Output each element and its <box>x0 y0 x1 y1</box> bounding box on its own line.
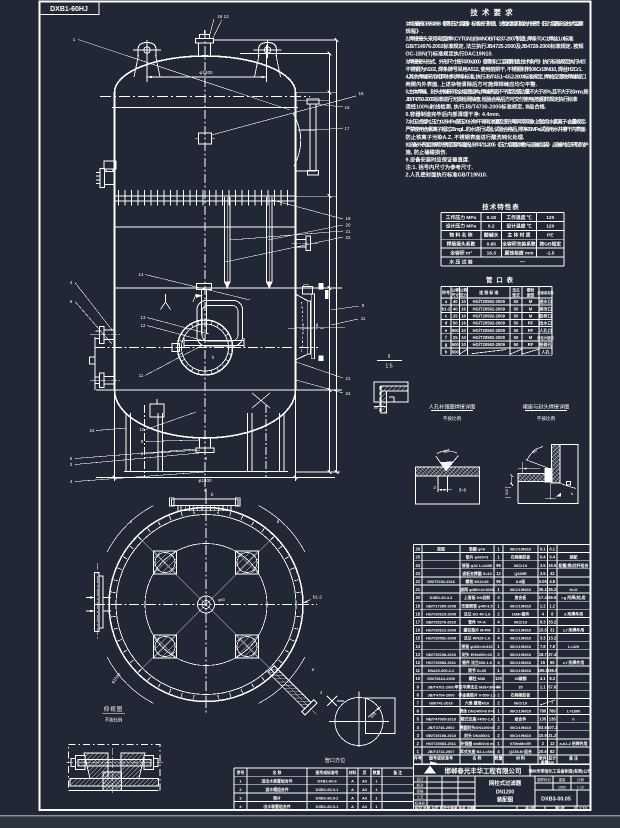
svg-text:密封: 密封 <box>526 288 535 293</box>
svg-text:DN420-600.2-2: DN420-600.2-2 <box>428 668 455 673</box>
svg-text:16.3: 16.3 <box>487 250 497 256</box>
svg-text:8.3: 8.3 <box>549 676 555 681</box>
svg-text:7.8: 7.8 <box>540 644 546 649</box>
svg-text:2.焊接接头采用电弧焊KCYTGN1(0)WNOB/T423: 2.焊接接头采用电弧焊KCYTGN1(0)WNOB/T4237-2007制造, … <box>406 35 575 43</box>
svg-text:封头 DN450X1: 封头 DN450X1 <box>464 733 491 738</box>
svg-text:液位计接口: 液位计接口 <box>537 335 553 340</box>
svg-text:A: A <box>351 795 354 800</box>
svg-text:管件 TF-A: 管件 TF-A <box>468 620 486 625</box>
svg-text:10: 10 <box>461 335 466 340</box>
svg-text:d: d <box>445 321 448 326</box>
svg-text:垫片 φ420×3: 垫片 φ420×3 <box>466 555 489 560</box>
svg-text:06Cr19Ni10: 06Cr19Ni10 <box>510 644 531 649</box>
svg-text:19: 19 <box>415 603 420 608</box>
svg-text:06Cr19: 06Cr19 <box>514 701 528 706</box>
svg-text:06Cr19Ni10: 06Cr19Ni10 <box>510 547 531 552</box>
svg-text:06Cr19Ni10: 06Cr19Ni10 <box>510 587 531 592</box>
svg-text:DXB1-60.5-1: DXB1-60.5-1 <box>316 804 340 809</box>
svg-text:120: 120 <box>495 676 503 681</box>
svg-text:18.7: 18.7 <box>539 652 548 657</box>
svg-text:15.5: 15.5 <box>539 628 548 633</box>
svg-text:两侧内外表面, 上述杂物清除后方可施焊焊缝应均匀平整.: 两侧内外表面, 上述杂物清除后方可施焊焊缝应均匀平整. <box>406 80 538 88</box>
svg-text:14: 14 <box>415 644 420 649</box>
svg-text:16: 16 <box>415 628 420 633</box>
svg-text:16: 16 <box>461 306 466 311</box>
svg-text:配重(钢)拉杆组合: 配重(钢)拉杆组合 <box>559 563 589 568</box>
svg-text:50: 50 <box>453 321 458 326</box>
svg-text:GB/T17395-2008: GB/T17395-2008 <box>426 603 457 608</box>
svg-text:M: M <box>529 299 533 304</box>
svg-text:装配图: 装配图 <box>496 796 514 804</box>
svg-text:780: 780 <box>549 709 557 714</box>
svg-text:HG/T20583-2011: HG/T20583-2011 <box>426 741 457 746</box>
svg-text:筒体 DN1400×8 δ=8: 筒体 DN1400×8 δ=8 <box>458 709 495 714</box>
svg-text:GB/T25198-2010: GB/T25198-2010 <box>426 733 456 738</box>
svg-text:管 口 表: 管 口 表 <box>486 275 514 284</box>
svg-text:1.本设备按GB150-1998《钢制压力容器》标准进行制造: 1.本设备按GB150-1998《钢制压力容器》标准进行制造、试验. 检验. 和… <box>406 20 585 28</box>
svg-text:GB/T25276-2010: GB/T25276-2010 <box>426 620 456 625</box>
svg-text:PE: PE <box>547 233 554 239</box>
svg-text:8.8级: 8.8级 <box>516 579 525 584</box>
svg-text:—: — <box>520 259 525 265</box>
svg-text:3.5: 3.5 <box>540 563 546 568</box>
svg-text:法兰 WN25-1.6: 法兰 WN25-1.6 <box>464 636 491 641</box>
svg-text:不按比例: 不按比例 <box>443 415 462 422</box>
svg-text:滤网 φ480×4×1040: 滤网 φ480×4×1040 <box>459 587 494 592</box>
svg-text:35碳钢: 35碳钢 <box>514 676 526 681</box>
svg-text:邯郸春光丰华工程有限公司: 邯郸春光丰华工程有限公司 <box>445 766 522 775</box>
svg-text:8.设备外表面涂刷防锈底漆两道(按)JB/T4711-200: 8.设备外表面涂刷防锈底漆两道(按)JB/T4711-2005《压力容器涂敷与运… <box>406 140 590 148</box>
svg-text:16Mn锻件: 16Mn锻件 <box>512 611 530 616</box>
svg-text:06Cr19Ni10: 06Cr19Ni10 <box>510 636 531 641</box>
svg-text:24: 24 <box>346 391 351 396</box>
svg-text:螺柱垫片 M-PM: 螺柱垫片 M-PM <box>463 628 490 633</box>
svg-text:主 体 材 质: 主 体 材 质 <box>507 232 530 239</box>
svg-text:11: 11 <box>361 316 366 321</box>
svg-text:公称: 公称 <box>451 288 459 293</box>
svg-text:技术特性表: 技术特性表 <box>482 202 520 211</box>
svg-text:垫片: 垫片 <box>273 795 281 800</box>
svg-text:96: 96 <box>496 563 501 568</box>
svg-text:L=1800: L=1800 <box>567 709 580 714</box>
svg-text:出水装置组合件: 出水装置组合件 <box>263 804 290 809</box>
svg-text:页: 页 <box>363 770 367 775</box>
svg-text:名 称: 名 称 <box>472 755 481 761</box>
svg-text:26: 26 <box>415 547 420 552</box>
svg-text:不锈钢为N102, 焊条牌号采用A512, 使用前烘干, 不: 不锈钢为N102, 焊条牌号采用A512, 使用前烘干, 不锈钢材料06Cr19… <box>406 65 584 73</box>
svg-text:Q235-B·组合: Q235-B·组合 <box>509 749 532 754</box>
svg-text:件号: 件号 <box>414 755 422 761</box>
svg-text:数量: 数量 <box>372 770 381 775</box>
svg-text:50: 50 <box>514 299 519 304</box>
svg-text:4.8: 4.8 <box>549 579 555 584</box>
svg-text:设计温度 ℃: 设计温度 ℃ <box>506 223 532 230</box>
svg-text:GB/T14976-2002标准规定, 法兰执行JB4725: GB/T14976-2002标准规定, 法兰执行JB4725-2000及JB47… <box>406 42 585 50</box>
svg-text:06Cr19Ni10: 06Cr19Ni10 <box>510 603 531 608</box>
svg-text:42: 42 <box>550 571 555 576</box>
svg-text:材 料: 材 料 <box>515 755 525 761</box>
svg-text:螺栓 M12×45: 螺栓 M12×45 <box>465 579 489 584</box>
svg-text:JB/T4750-2005标准进行无损检测抽查, 检验合格后: JB/T4750-2005标准进行无损检测抽查, 检验合格后方可交付使用(按)图… <box>406 95 579 103</box>
svg-text:第1张: 第1张 <box>555 806 565 811</box>
svg-text:进水口: 进水口 <box>539 298 552 305</box>
svg-text:r.g 所焊(封)用: r.g 所焊(封)用 <box>562 595 586 600</box>
svg-text:注:1. 括号内尺寸为参考尺寸.: 注:1. 括号内尺寸为参考尺寸. <box>406 163 474 171</box>
svg-text:21: 21 <box>415 587 420 592</box>
svg-text:δ=8: δ=8 <box>459 488 467 493</box>
svg-text:135: 135 <box>539 717 547 722</box>
svg-text:JB/T4746-2002: JB/T4746-2002 <box>427 725 455 730</box>
svg-text:DXB1-60.3-3: DXB1-60.3-3 <box>430 595 454 600</box>
svg-text:施, 防止磕碰损伤.: 施, 防止磕碰损伤. <box>406 148 448 156</box>
svg-text:技 术 要 求: 技 术 要 求 <box>470 7 513 17</box>
svg-text:M: M <box>529 306 533 311</box>
svg-text:12: 12 <box>141 323 146 328</box>
svg-text:10: 10 <box>415 676 420 681</box>
svg-text:出水口: 出水口 <box>539 320 552 327</box>
svg-text:HG/T20592-2009: HG/T20592-2009 <box>473 342 506 347</box>
svg-text:b1-2: b1-2 <box>442 306 451 311</box>
svg-text:57.6: 57.6 <box>548 684 557 689</box>
svg-text:13: 13 <box>141 315 146 320</box>
svg-text:4.其余焊缝采用相同材料焊条标准, 执行JB/T4.5.1~: 4.其余焊缝采用相同材料焊条标准, 执行JB/T4.5.1~4.5.2-2000… <box>406 72 587 80</box>
svg-text:0.2: 0.2 <box>488 224 495 230</box>
svg-text:20.6: 20.6 <box>539 749 548 754</box>
svg-text:OC-1BN(T)标准规定执行DAC19N10.: OC-1BN(T)标准规定执行DAC19N10. <box>406 50 494 58</box>
svg-text:A3: A3 <box>362 778 368 783</box>
svg-text:GB/T41-2016: GB/T41-2016 <box>429 701 453 706</box>
svg-text:HG/T20592-2009: HG/T20592-2009 <box>426 636 457 641</box>
svg-text:g: g <box>445 342 448 347</box>
svg-text:取样口: 取样口 <box>539 313 552 320</box>
svg-text:HG/T20592-2009: HG/T20592-2009 <box>473 306 506 311</box>
svg-text:16: 16 <box>461 314 466 319</box>
svg-text:防止铁离子污染A.Z, 不锈钢表面进行酸洗钝化处理.: 防止铁离子污染A.Z, 不锈钢表面进行酸洗钝化处理. <box>406 133 525 141</box>
svg-text:封头 EHA600×10: 封头 EHA600×10 <box>462 652 492 657</box>
svg-text:DN1200: DN1200 <box>496 790 515 796</box>
svg-text:25: 25 <box>415 555 420 560</box>
svg-text:17.4: 17.4 <box>539 595 548 600</box>
svg-text:06Cr19Ni10: 06Cr19Ni10 <box>510 660 531 665</box>
svg-text:4.1: 4.1 <box>540 676 546 681</box>
svg-text:0.1: 0.1 <box>549 547 555 552</box>
svg-text:h: h <box>212 355 215 360</box>
svg-text:腐蚀裕度 mm: 腐蚀裕度 mm <box>504 249 533 256</box>
svg-text:33.2: 33.2 <box>548 620 557 625</box>
svg-text:6.容器制造完毕后内部清理干净: 4.4mm.: 6.容器制造完毕后内部清理干净: 4.4mm. <box>406 110 501 118</box>
svg-text:50: 50 <box>514 306 519 311</box>
svg-text:06Cr19Ni10: 06Cr19Ni10 <box>510 628 531 633</box>
svg-text:接管 φ108×4×320: 接管 φ108×4×320 <box>460 644 492 649</box>
svg-text:上管板 DN自制: 上管板 DN自制 <box>464 595 490 600</box>
svg-text:a,b1-2 所焊件用: a,b1-2 所焊件用 <box>560 741 588 746</box>
svg-text:1:10: 1:10 <box>579 807 587 811</box>
svg-text:排污口: 排污口 <box>539 305 552 312</box>
svg-text:备 注: 备 注 <box>568 755 578 761</box>
svg-text:0.05: 0.05 <box>539 579 548 584</box>
svg-text:六角 螺母M16: 六角 螺母M16 <box>465 701 490 706</box>
svg-text:20: 20 <box>415 595 420 600</box>
svg-text:-1.5: -1.5 <box>546 250 555 256</box>
svg-text:10: 10 <box>461 328 466 333</box>
svg-text:543: 543 <box>505 489 509 495</box>
svg-text:审核: 审核 <box>416 789 424 794</box>
svg-text:40: 40 <box>453 306 458 311</box>
svg-text:13: 13 <box>415 652 420 657</box>
svg-text:标记 处数 分区 更改文件号 签名 日期: 标记 处数 分区 更改文件号 签名 日期 <box>414 806 474 811</box>
svg-text:600: 600 <box>452 342 460 347</box>
svg-text:重量(kg): 重量(kg) <box>541 759 556 764</box>
svg-text:06Cr19Ni10: 06Cr19Ni10 <box>510 733 531 738</box>
svg-text:筒节 δ=35: 筒节 δ=35 <box>467 668 487 673</box>
svg-text:50: 50 <box>514 328 519 333</box>
svg-text:h: h <box>445 349 448 354</box>
svg-text:M: M <box>374 405 378 410</box>
svg-text:15: 15 <box>540 660 545 665</box>
svg-text:DXB1-60.3-1: DXB1-60.3-1 <box>316 787 340 792</box>
svg-text:HG/T20592-2009: HG/T20592-2009 <box>473 335 506 340</box>
svg-text:鞍式支座 FF50-1.6: 鞍式支座 FF50-1.6 <box>461 717 494 722</box>
svg-text:8.3: 8.3 <box>540 620 546 625</box>
svg-text:A3: A3 <box>362 795 368 800</box>
svg-text:规程》.: 规程》. <box>406 27 424 35</box>
svg-text:进出水装置组合件: 进出水装置组合件 <box>261 778 292 783</box>
svg-text:A: A <box>351 778 354 783</box>
svg-text:物 料 名 称: 物 料 名 称 <box>449 232 472 239</box>
svg-text:0.18: 0.18 <box>487 215 497 221</box>
svg-text:HG/T20592-2009: HG/T20592-2009 <box>473 314 506 319</box>
svg-text:17: 17 <box>415 620 420 625</box>
svg-text:NB/T47065-2018: NB/T47065-2018 <box>426 717 457 722</box>
svg-text:M: M <box>529 314 533 319</box>
svg-text:24: 24 <box>90 428 95 433</box>
svg-text:HG/T20615-2009: HG/T20615-2009 <box>426 611 457 616</box>
svg-text:耳式支座 B2-L=504: 耳式支座 B2-L=504 <box>460 749 495 754</box>
svg-text:120: 120 <box>546 224 554 230</box>
svg-text:16: 16 <box>345 105 350 110</box>
svg-text:15: 15 <box>415 636 420 641</box>
svg-text:DXB1-60.6: DXB1-60.6 <box>317 778 337 783</box>
svg-text:GB/T25198-2010: GB/T25198-2010 <box>426 652 456 657</box>
svg-text:管口方位: 管口方位 <box>325 756 346 764</box>
svg-text:严禁使用含氯离子超过25mg/L. 的水进行试验, 试验合格: 严禁使用含氯离子超过25mg/L. 的水进行试验, 试验合格后, 排净25MPa… <box>405 125 587 133</box>
svg-text:数量: 数量 <box>494 755 503 761</box>
svg-text:螺柱 M36: 螺柱 M36 <box>469 676 486 681</box>
svg-text:φ1400: φ1400 <box>199 70 213 75</box>
svg-text:d 所焊件用: d 所焊件用 <box>564 611 583 616</box>
svg-text:用途或名称: 用途或名称 <box>537 290 555 295</box>
svg-text:法兰: 法兰 <box>512 288 520 293</box>
svg-text:11: 11 <box>416 668 421 673</box>
svg-text:检修孔: 检修孔 <box>539 341 552 348</box>
svg-text:3.5: 3.5 <box>540 571 546 576</box>
svg-text:补强圈 dn560×8 m: 补强圈 dn560×8 m <box>460 741 495 746</box>
svg-text:法兰 SO 40-1.6: 法兰 SO 40-1.6 <box>464 611 491 616</box>
svg-text:d: d <box>277 519 280 525</box>
svg-text:1.2: 1.2 <box>540 603 546 608</box>
svg-text:1.2: 1.2 <box>549 603 555 608</box>
svg-text:HG/T20592-2009: HG/T20592-2009 <box>473 321 506 326</box>
svg-text:12: 12 <box>550 741 555 746</box>
svg-text:c,f 所焊件用: c,f 所焊件用 <box>563 628 584 633</box>
svg-text:人孔口: 人孔口 <box>538 327 552 334</box>
svg-text:10: 10 <box>461 342 466 347</box>
svg-text:10: 10 <box>461 299 466 304</box>
svg-text:3.3: 3.3 <box>540 636 546 641</box>
svg-text:M: M <box>529 335 533 340</box>
svg-text:备 注: 备 注 <box>392 770 402 775</box>
svg-text:RF: RF <box>528 321 534 326</box>
svg-text:7.水压试验时, 压力0.25MPa保压30分钟不得有渗漏及: 7.水压试验时, 压力0.25MPa保压30分钟不得有渗漏及变形等异常现象, 试… <box>406 118 587 126</box>
svg-text:0.85: 0.85 <box>487 242 497 248</box>
svg-text:共1张: 共1张 <box>525 806 535 811</box>
svg-text:滤水帽组合件: 滤水帽组合件 <box>264 787 288 792</box>
svg-text:L=420: L=420 <box>568 644 579 649</box>
svg-text:195.5: 195.5 <box>547 668 558 673</box>
svg-text:12: 12 <box>496 571 501 576</box>
svg-text:标准化: 标准化 <box>415 801 426 806</box>
svg-text:64: 64 <box>496 684 501 689</box>
svg-text:07MnMoVR: 07MnMoVR <box>510 741 531 746</box>
svg-text:06Cr19Ni10: 06Cr19Ni10 <box>510 652 531 657</box>
svg-text:全容积充装系数: 全容积充装系数 <box>501 241 536 248</box>
svg-text:600: 600 <box>452 328 460 333</box>
svg-text:水 压 试 验: 水 压 试 验 <box>448 258 472 265</box>
svg-text:3.焊接接头形式、外形尺寸按T4709-2000《钢制化工容: 3.焊接接头形式、外形尺寸按T4709-2000《钢制化工容器制造. 技术条件》… <box>406 57 588 65</box>
svg-text:21: 21 <box>346 376 351 381</box>
svg-text:JB/T4704-2000: JB/T4704-2000 <box>427 692 454 697</box>
svg-text:HG/T20592-2009: HG/T20592-2009 <box>473 299 506 304</box>
svg-text:压力: 压力 <box>460 293 468 298</box>
svg-text:1:10: 1:10 <box>577 786 584 790</box>
svg-text:0.4: 0.4 <box>540 555 546 560</box>
svg-text:石棉橡胶板: 石棉橡胶板 <box>510 555 531 560</box>
svg-text:18.5: 18.5 <box>548 563 557 568</box>
svg-text:须经100%射线检测, 执行JB/T4730-2005标准规: 须经100%射线检测, 执行JB/T4730-2005标准规定, Ⅲ级合格. <box>406 103 547 111</box>
svg-text:人孔: 人孔 <box>540 348 550 355</box>
svg-text:06Cr19Ni10: 06Cr19Ni10 <box>510 709 531 714</box>
svg-text:Q345R: Q345R <box>514 571 527 576</box>
svg-text:13.2: 13.2 <box>548 636 557 641</box>
svg-text:5.主体焊缝、封头拼缝采用全熔透结构, 焊缝表面不平度及错边: 5.主体焊缝、封头拼缝采用全熔透结构, 焊缝表面不平度及错边量不大于20%, 且… <box>406 87 590 95</box>
svg-text:组合件: 组合件 <box>515 717 527 722</box>
svg-text:φ60: φ60 <box>218 598 225 602</box>
svg-text:1560: 1560 <box>558 786 566 790</box>
svg-text:HG/T20592-2009: HG/T20592-2009 <box>473 328 506 333</box>
svg-text:37.4: 37.4 <box>548 652 557 657</box>
svg-text:校对: 校对 <box>416 783 424 788</box>
svg-text:16: 16 <box>461 321 466 326</box>
svg-text:甲型平焊法兰 M36×300-A: 甲型平焊法兰 M36×300-A <box>455 684 500 689</box>
svg-text:40: 40 <box>453 299 458 304</box>
svg-text:HG/T20583-2011: HG/T20583-2011 <box>426 660 457 665</box>
svg-text:e: e <box>312 668 315 673</box>
svg-text:滤板支撑圈 δ=10: 滤板支撑圈 δ=10 <box>461 571 492 576</box>
svg-text:复合板: 复合板 <box>514 595 527 600</box>
svg-text:尺寸: 尺寸 <box>451 293 459 298</box>
svg-text:16 12: 16 12 <box>217 14 229 19</box>
svg-text:50: 50 <box>514 314 519 319</box>
svg-text:06Cr19Ni10: 06Cr19Ni10 <box>510 668 531 673</box>
svg-text:焊接接头系数: 焊接接头系数 <box>447 241 476 248</box>
svg-text:780: 780 <box>539 709 547 714</box>
svg-text:15: 15 <box>358 91 364 96</box>
svg-text:工艺: 工艺 <box>416 795 424 800</box>
svg-text:锦州市荣信化工设备制造(有限)公司: 锦州市荣信化工设备制造(有限)公司 <box>529 768 592 774</box>
svg-text:A: A <box>351 787 354 792</box>
svg-text:名 称: 名 称 <box>273 770 282 775</box>
svg-text:10.9: 10.9 <box>539 733 548 738</box>
svg-text:垫圈 φ=6: 垫圈 φ=6 <box>469 547 486 552</box>
svg-text:GB/T5782-2016: GB/T5782-2016 <box>427 579 456 584</box>
svg-text:96: 96 <box>496 579 501 584</box>
svg-text:0.4: 0.4 <box>549 555 555 560</box>
svg-text:17: 17 <box>345 126 350 131</box>
svg-text:50: 50 <box>514 321 519 326</box>
svg-text:φ1400: φ1400 <box>198 478 212 483</box>
svg-text:仰视图: 仰视图 <box>104 705 123 713</box>
svg-text:工作压力 MPa: 工作压力 MPa <box>446 214 477 221</box>
svg-text:18: 18 <box>415 611 420 616</box>
svg-text:06Cr19: 06Cr19 <box>514 563 528 568</box>
svg-text:RF: RF <box>528 342 534 347</box>
svg-text:35.2: 35.2 <box>548 587 557 592</box>
svg-text:HG/T20612-2009: HG/T20612-2009 <box>426 628 457 633</box>
svg-text:60: 60 <box>550 660 555 665</box>
svg-text:材料: 材料 <box>348 770 357 775</box>
svg-text:装配: 装配 <box>569 555 578 560</box>
svg-text:19: 19 <box>346 216 351 221</box>
svg-text:22: 22 <box>346 235 351 240</box>
svg-text:DXB1-60HJ: DXB1-60HJ <box>50 6 88 13</box>
svg-text:500: 500 <box>452 349 460 354</box>
svg-text:06Cr19Ni10: 06Cr19Ni10 <box>510 725 531 730</box>
svg-text:图号或标准号: 图号或标准号 <box>316 770 339 775</box>
svg-text:21: 21 <box>346 229 351 234</box>
svg-text:不按比例: 不按比例 <box>537 415 556 422</box>
svg-text:06Cr19: 06Cr19 <box>514 620 528 625</box>
svg-text:重量: 重量 <box>559 777 566 782</box>
svg-text:A3: A3 <box>362 804 368 809</box>
svg-text:35.2: 35.2 <box>539 587 548 592</box>
svg-text:连 接 标 准: 连 接 标 准 <box>479 289 498 295</box>
svg-text:比例: 比例 <box>577 777 584 782</box>
svg-text:酸碱水: 酸碱水 <box>484 232 499 239</box>
svg-text:14: 14 <box>139 272 144 277</box>
svg-text:135: 135 <box>549 717 557 722</box>
svg-text:24: 24 <box>415 563 420 568</box>
svg-text:工作温度 ℃: 工作温度 ℃ <box>506 214 532 221</box>
svg-text:不按比例: 不按比例 <box>105 717 123 724</box>
svg-text:无缝钢管 φ45×3.5: 无缝钢管 φ45×3.5 <box>460 603 493 608</box>
svg-text:g: g <box>316 322 319 327</box>
svg-text:图号或标准号: 图号或标准号 <box>429 755 453 761</box>
svg-text:9.设备安装时应保证垂直度.: 9.设备安装时应保证垂直度. <box>406 155 471 163</box>
svg-text:82: 82 <box>550 749 555 754</box>
svg-text:序号: 序号 <box>236 770 245 775</box>
svg-text:23: 23 <box>415 571 420 576</box>
svg-text:A3: A3 <box>362 787 368 792</box>
svg-text:全容积 m³: 全容积 m³ <box>449 249 472 256</box>
svg-text:接管 φ32 L=4450: 接管 φ32 L=4450 <box>461 563 492 568</box>
svg-text:107.2: 107.2 <box>547 725 558 730</box>
svg-text:b1-2: b1-2 <box>313 595 322 600</box>
svg-text:20: 20 <box>346 222 351 227</box>
svg-text:裙座与封头焊接详图: 裙座与封头焊接详图 <box>523 403 570 411</box>
svg-text:JB/T4701-2000: JB/T4701-2000 <box>427 684 454 689</box>
svg-text:按图: 按图 <box>437 547 445 552</box>
svg-text:10: 10 <box>140 427 145 432</box>
